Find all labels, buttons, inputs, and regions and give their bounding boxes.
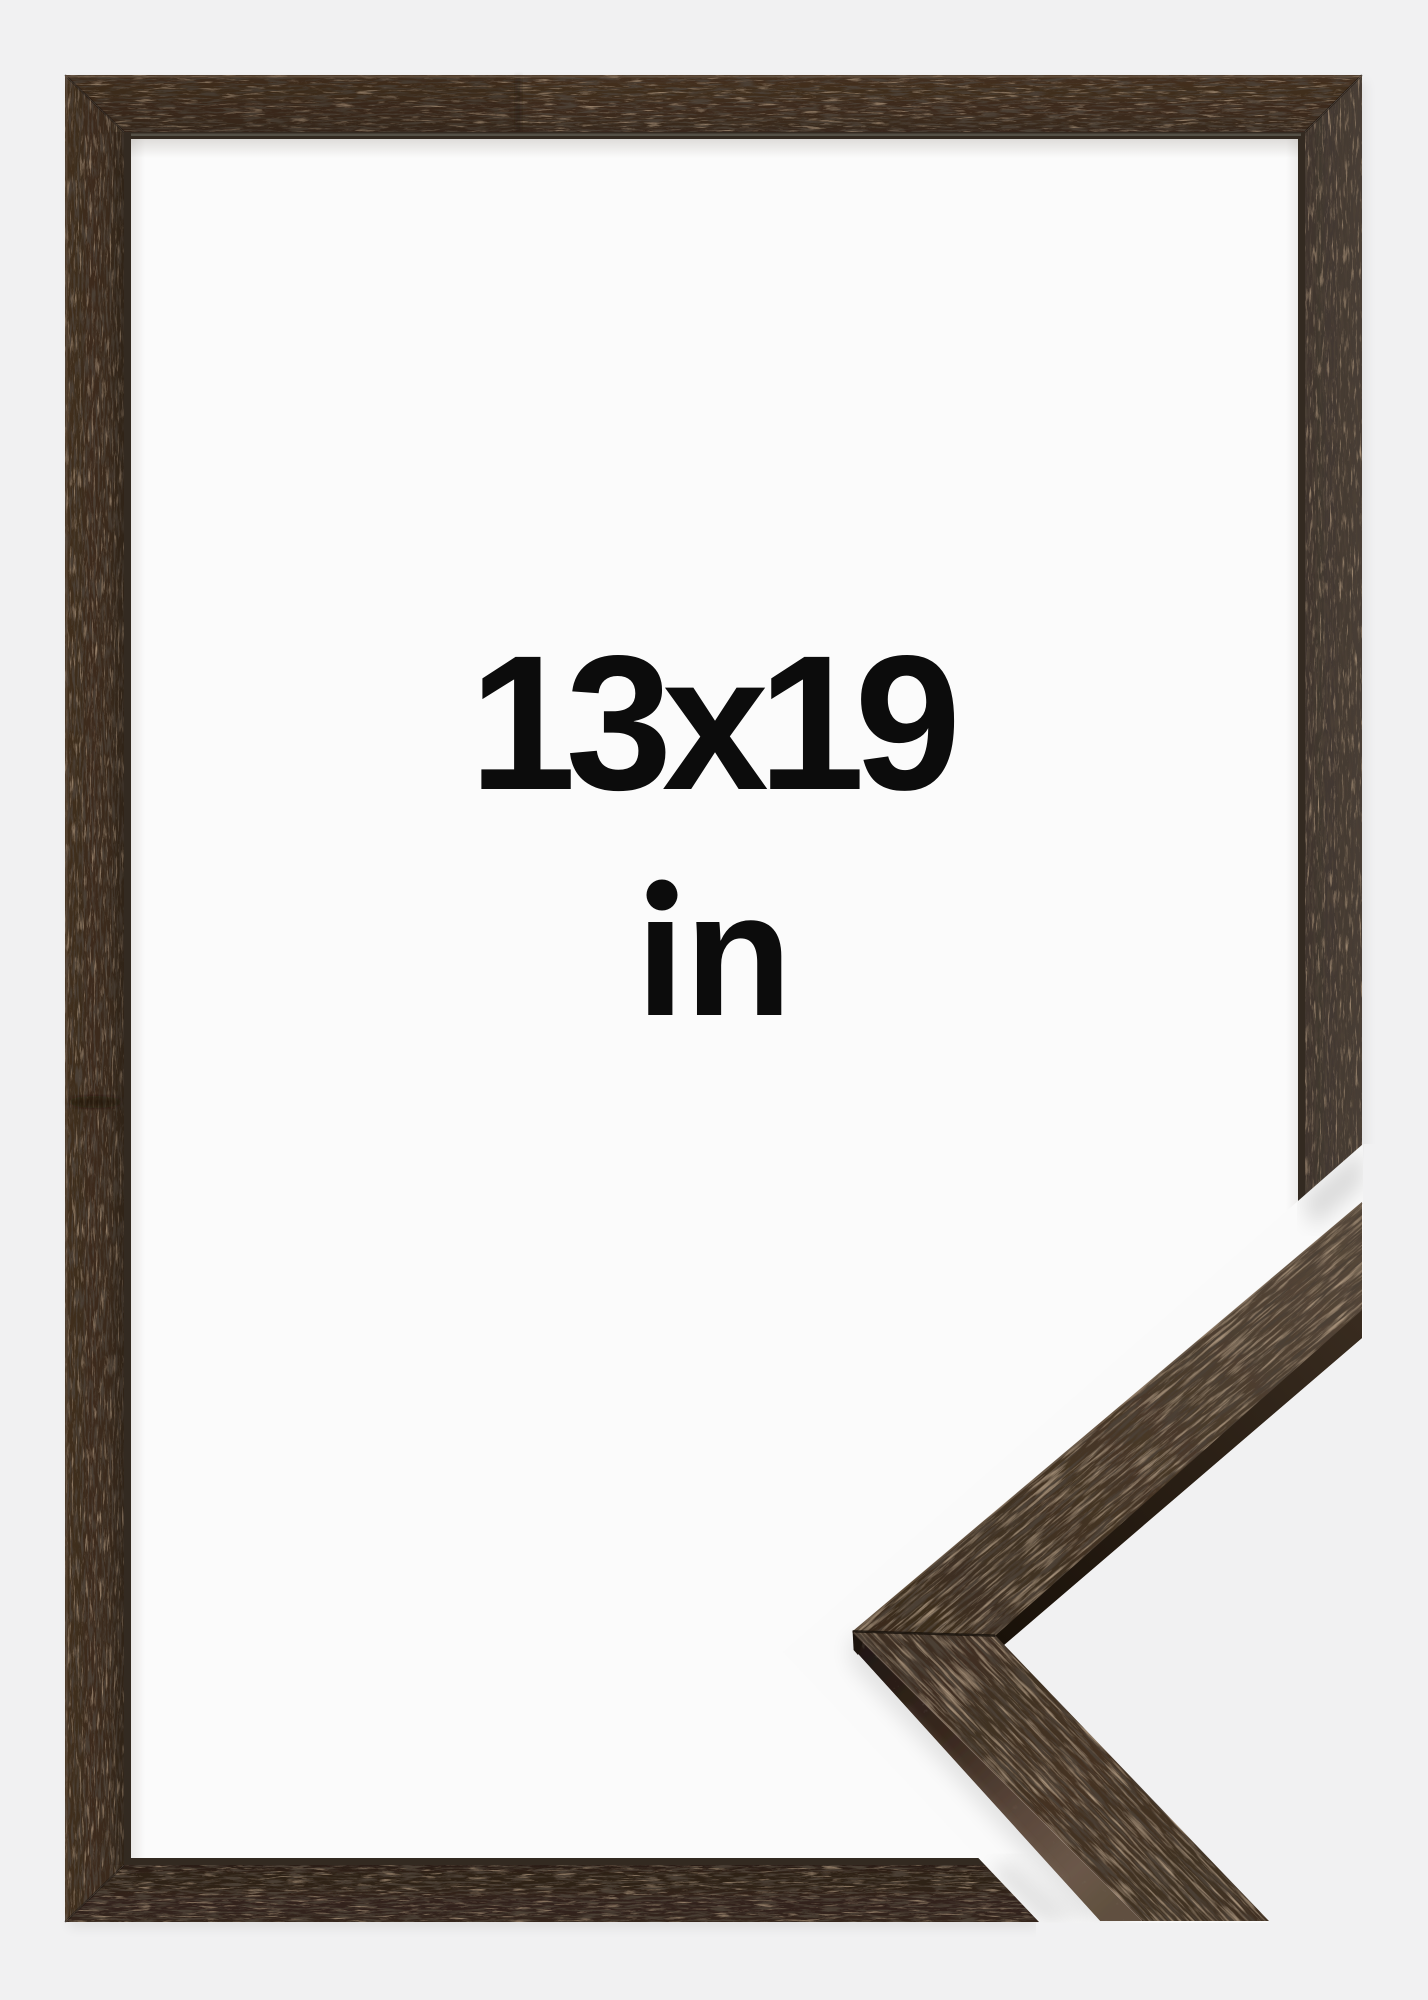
svg-text:13x19: 13x19: [469, 615, 954, 830]
